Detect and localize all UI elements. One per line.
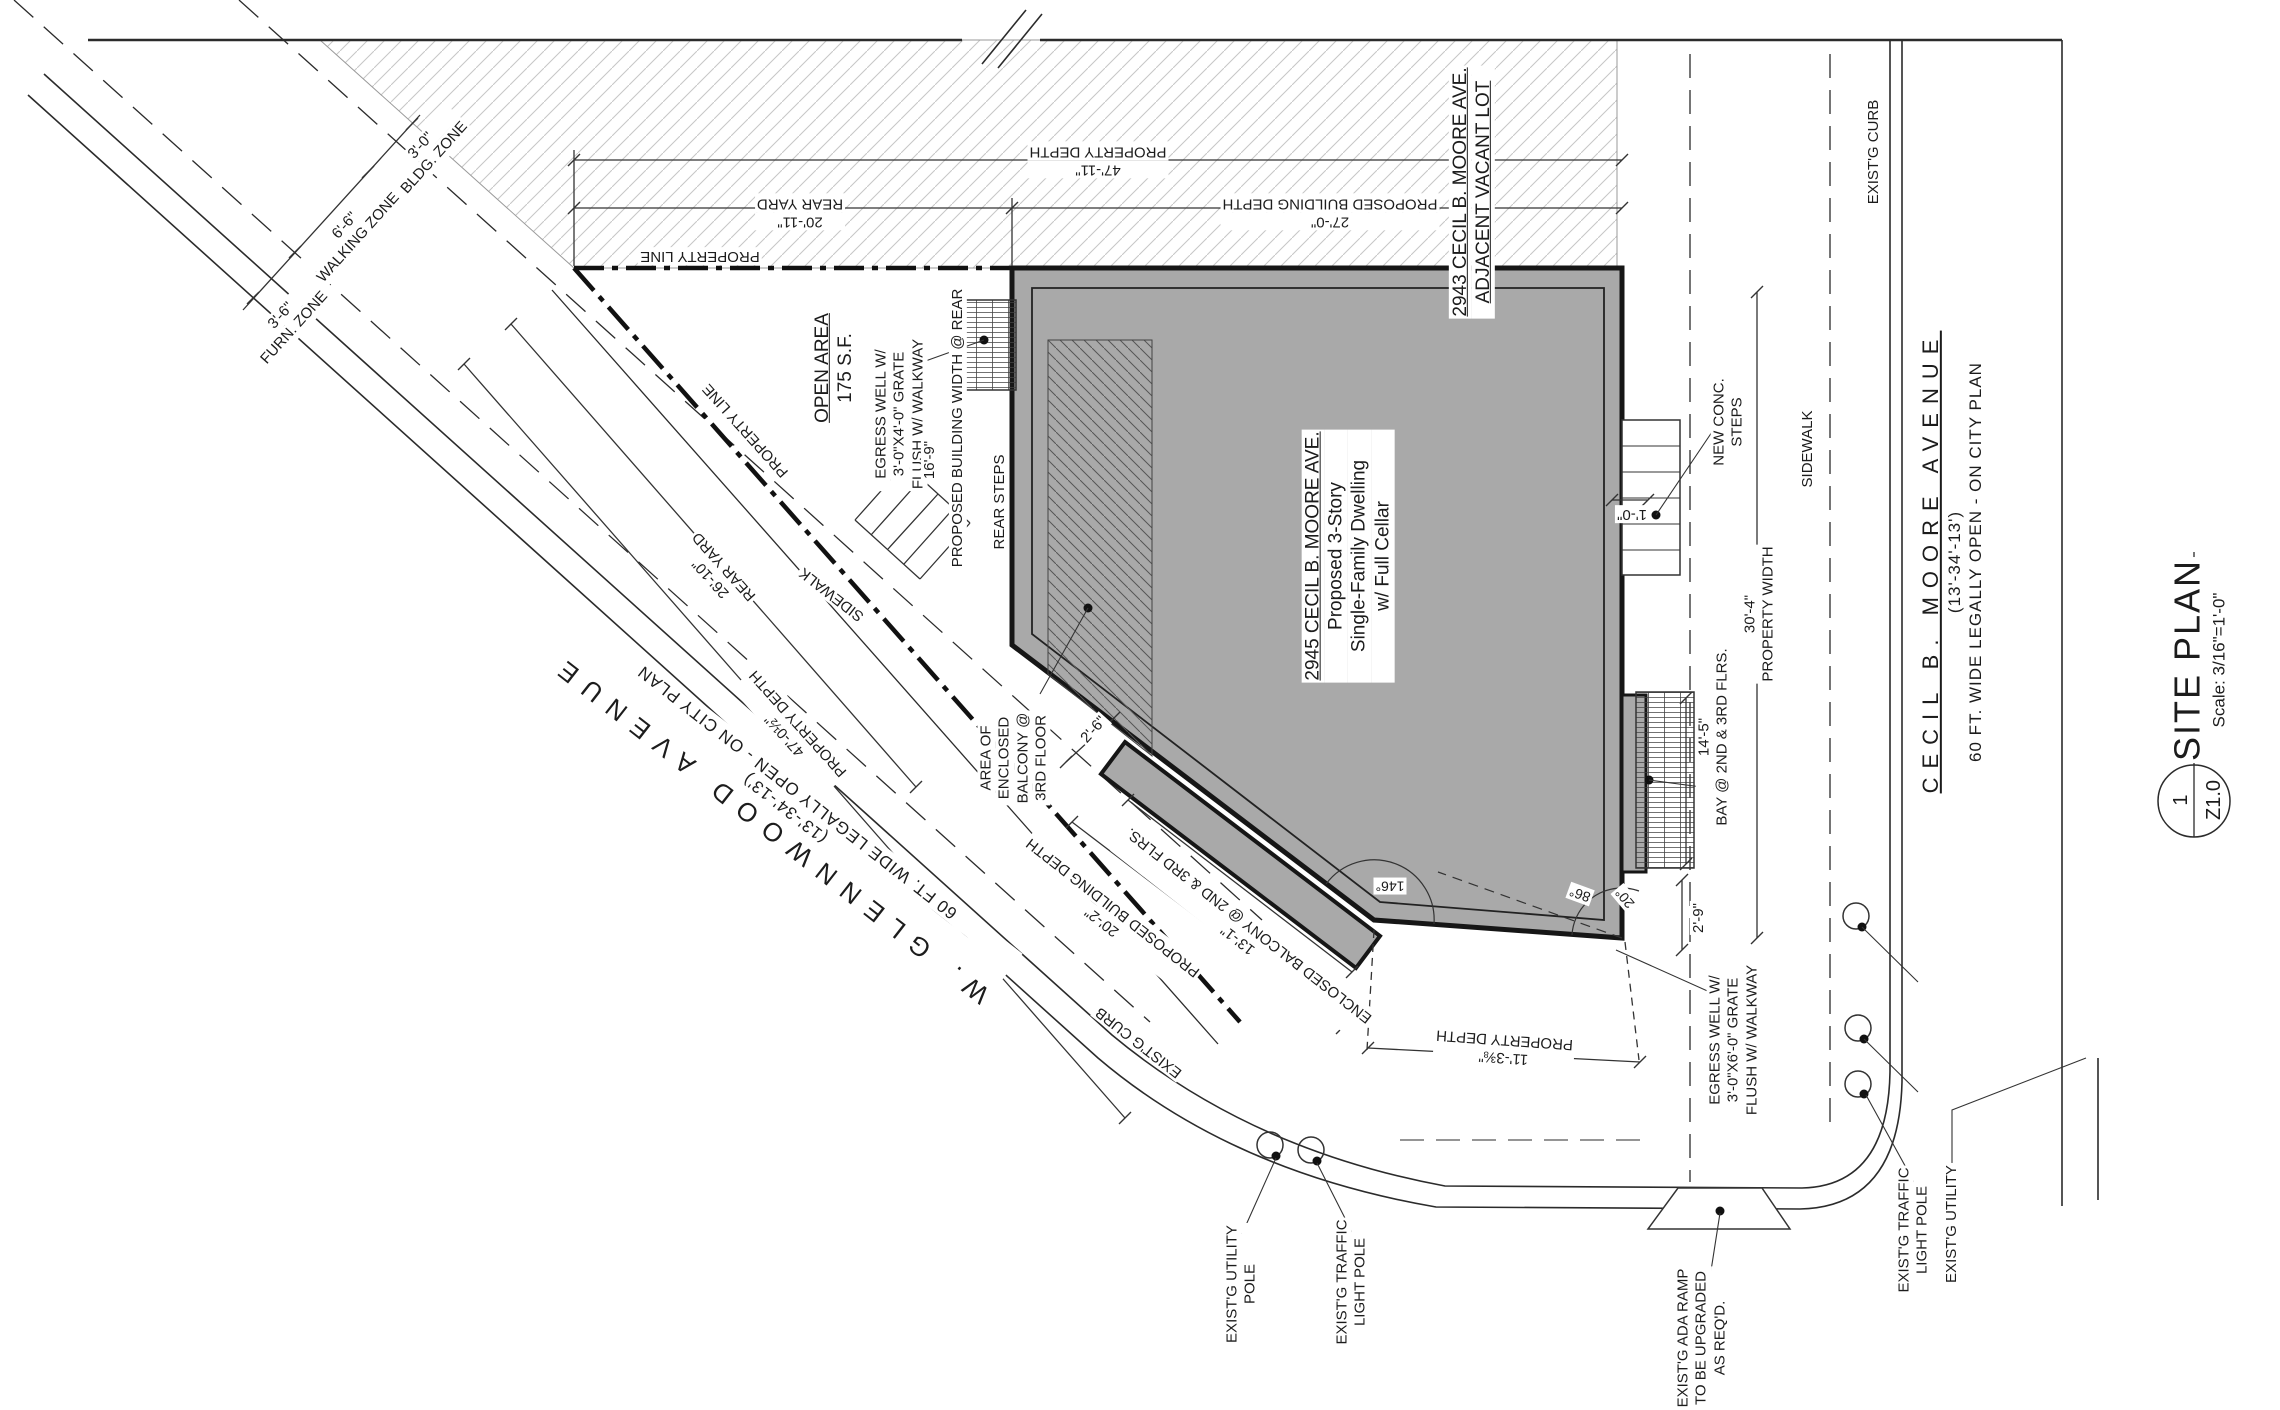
balcony-area-label: AREA OF ENCLOSED BALCONY @ 3RD FLOOR (977, 711, 1050, 806)
adjacent-lot-hatch (320, 40, 1617, 268)
balcony-3rd-floor-hatch (1048, 340, 1152, 756)
dim-2-9: 2'-9" (1690, 901, 1708, 935)
site-plan-canvas: 47'-11" PROPERTY DEPTH 20'-11" REAR YARD… (0, 0, 2280, 1410)
utility-pole-label-bl: EXIST'G UTILITY POLE (1224, 1223, 1261, 1345)
sidewalk-label-right: SIDEWALK (1799, 409, 1817, 490)
exist-utility-label-br: EXIST'G UTILITY (1943, 1163, 1961, 1285)
dim-rear-yard-top: 20'-11" REAR YARD (755, 194, 845, 231)
new-conc-steps-label: NEW CONC. STEPS (1711, 376, 1748, 468)
sheet-number: Z1.0 (2202, 778, 2226, 822)
scale-note: Scale: 3/16"=1'-0" (2210, 557, 2231, 763)
dim-property-depth-top: 47'-11" PROPERTY DEPTH (1028, 142, 1169, 179)
cecil-street-name: CECIL B. MOORE AVENUE (13'-34'-13') 60 F… (1918, 329, 1986, 796)
rear-steps-label: REAR STEPS (991, 452, 1009, 551)
adjacent-lot-label: 2943 CECIL B. MOORE AVE. ADJACENT VACANT… (1449, 65, 1495, 318)
angle-146: 146° (1374, 877, 1407, 894)
traffic-pole-label-bl: EXIST'G TRAFFIC LIGHT POLE (1334, 1217, 1371, 1346)
ada-ramp-label: EXIST'G ADA RAMP TO BE UPGRADED AS REQ'D… (1675, 1267, 1730, 1410)
egress-well-front-label: EGRESS WELL W/ 3'-0"X6'-0" GRATE FLUSH W… (1707, 963, 1762, 1117)
page-title: SITE PLAN (2166, 557, 2210, 763)
open-area-label: OPEN AREA 175 S.F. (811, 311, 857, 425)
exist-curb-label-right: EXIST'G CURB (1865, 98, 1883, 207)
building-label: 2945 CECIL B. MOORE AVE. Proposed 3-Stor… (1302, 429, 1395, 682)
traffic-pole-label-br: EXIST'G TRAFFIC LIGHT POLE (1896, 1165, 1933, 1294)
property-line-label-top: PROPERTY LINE (638, 247, 762, 265)
dim-property-width: 30'-4" PROPERTY WIDTH (1742, 544, 1779, 683)
building-width-rear-label: PROPOSED BUILDING WIDTH @ REAR (949, 287, 967, 570)
dim-bay: 14'-5" BAY @ 2ND & 3RD FLRS. (1696, 646, 1733, 827)
dim-16-9: 16'-9" (921, 439, 939, 481)
dim-1-0: 1'-0" (1615, 505, 1649, 523)
detail-number: 1 (2169, 792, 2193, 807)
title-block: SITE PLAN Scale: 3/16"=1'-0" (2166, 557, 2231, 763)
dim-building-depth-top: 27'-0" PROPOSED BUILDING DEPTH (1220, 194, 1439, 231)
egress-well-rear-label: EGRESS WELL W/ 3'-0"X4'-0" GRATE FLUSH W… (873, 337, 928, 491)
